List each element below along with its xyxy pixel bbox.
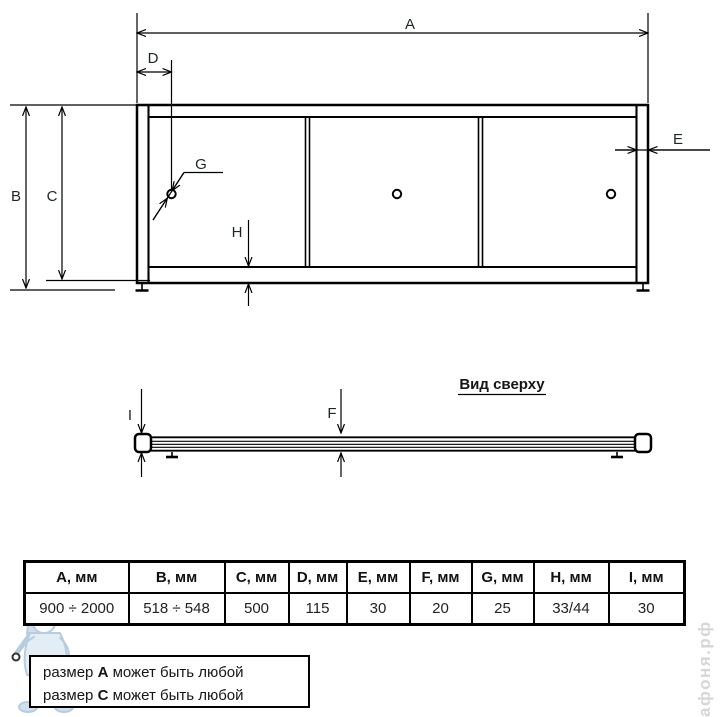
value-I: 30 [609,593,685,625]
col-header-C: C, мм [225,562,289,594]
col-header-F: F, мм [410,562,472,594]
label-B: B [11,188,21,205]
col-header-G: G, мм [472,562,534,594]
label-F: F [327,405,336,422]
value-F: 20 [410,593,472,625]
label-I: I [128,407,132,424]
value-D: 115 [289,593,347,625]
front-view [136,105,650,291]
value-A: 900 ÷ 2000 [25,593,129,625]
value-E: 30 [347,593,410,625]
table-header-row: A, мм B, мм C, мм D, мм E, мм F, мм G, м… [25,562,685,594]
right-end-cap [635,434,651,452]
bath-screen-drawing-page: A D B C E [0,0,723,717]
label-A: A [405,16,415,33]
col-header-A: A, мм [25,562,129,594]
col-header-D: D, мм [289,562,347,594]
value-G: 25 [472,593,534,625]
left-end-cap [135,434,151,452]
value-C: 500 [225,593,289,625]
site-watermark: афоня.рф [695,582,715,717]
col-header-E: E, мм [347,562,410,594]
table-value-row: 900 ÷ 2000 518 ÷ 548 500 115 30 20 25 33… [25,593,685,625]
top-view: Вид сверху [128,376,651,477]
dimension-F: F [327,389,341,477]
label-C: C [47,188,58,205]
top-view-title: Вид сверху [459,376,545,393]
dimension-B-C: B C [10,105,150,290]
frame-feet [136,284,650,291]
dimension-A: A [137,13,648,103]
value-H: 33/44 [534,593,609,625]
col-header-H: H, мм [534,562,609,594]
technical-drawing: A D B C E [0,0,723,540]
value-B: 518 ÷ 548 [129,593,225,625]
dimensions-table: A, мм B, мм C, мм D, мм E, мм F, мм G, м… [23,560,686,626]
notes-box: размер A может быть любой размер C может… [29,655,310,708]
label-D: D [148,50,159,67]
profile-feet [166,452,623,457]
note-line-c: размер C может быть любой [43,684,308,707]
label-H: H [232,224,243,241]
label-G: G [195,156,207,173]
label-E: E [673,131,683,148]
top-view-profile [135,434,651,457]
col-header-B: B, мм [129,562,225,594]
col-header-I: I, мм [609,562,685,594]
note-line-a: размер A может быть любой [43,661,308,684]
